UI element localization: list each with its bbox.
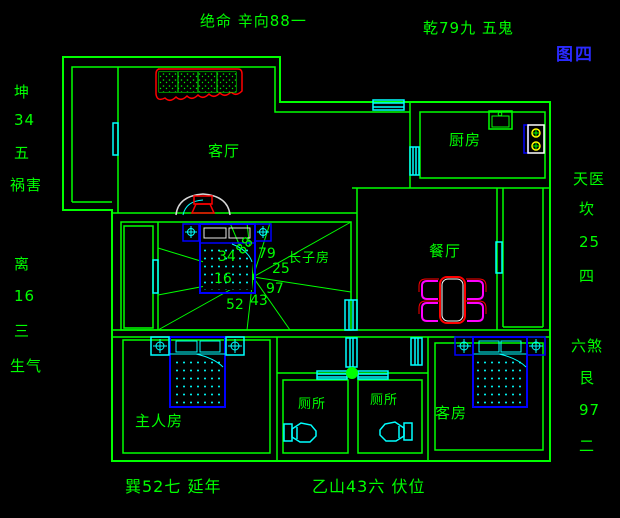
kitchen-left-window — [410, 147, 419, 175]
living-left-window — [113, 123, 118, 155]
lamp-icon — [529, 339, 543, 353]
room-label-guest: 客房 — [435, 405, 467, 422]
annotation-right-si: 四 — [579, 268, 595, 285]
corridor-column — [346, 367, 358, 379]
lamp-icon — [185, 226, 197, 238]
room-label-toilet-2: 厕所 — [370, 394, 398, 408]
cad-canvas: 绝命 辛向88一 乾79九 五鬼 图四 坤 34 五 祸害 离 16 三 生气 … — [0, 0, 620, 518]
corridor-vent-1 — [346, 338, 357, 367]
tv-cabinet — [176, 194, 230, 215]
lamp-icon — [153, 339, 167, 353]
annotation-top-left: 绝命 辛向88一 — [200, 13, 307, 30]
lamp-icon — [257, 226, 269, 238]
annotation-right-kan: 坎 — [579, 201, 595, 218]
compass-number-79: 79 — [258, 246, 276, 262]
compass-number-16: 16 — [214, 271, 232, 287]
gas-stove — [524, 125, 544, 153]
room-label-eldest-son: 长子房 — [288, 252, 330, 266]
compass-number-97: 97 — [266, 281, 284, 297]
annotation-right-liusha: 六煞 — [571, 338, 603, 355]
sofa — [156, 69, 242, 100]
room-label-kitchen: 厨房 — [449, 132, 481, 149]
pillow — [200, 341, 220, 352]
nightstand — [455, 337, 473, 355]
kitchen-sink — [489, 111, 512, 129]
room-label-toilet-1: 厕所 — [298, 398, 326, 412]
pillow — [176, 341, 197, 352]
annotation-left-wu: 五 — [14, 145, 30, 162]
annotation-top-right: 乾79九 五鬼 — [423, 20, 514, 37]
annotation-right-97: 97 — [579, 402, 600, 419]
closet — [124, 226, 153, 328]
annotation-right-tianyi: 天医 — [573, 171, 605, 188]
nightstand — [183, 224, 199, 241]
toilet-icon — [380, 422, 412, 441]
room-label-living: 客厅 — [208, 143, 240, 160]
annotation-bottom-left: 巽52七 延年 — [125, 478, 221, 496]
pillow — [204, 228, 226, 238]
figure-label: 图四 — [556, 40, 594, 65]
annotation-right-er: 二 — [579, 438, 595, 455]
corridor-vent-2 — [411, 338, 422, 365]
annotation-right-25: 25 — [579, 234, 600, 251]
compass-number-34: 34 — [218, 249, 236, 265]
compass-number-52: 52 — [226, 297, 244, 313]
annotation-left-16: 16 — [14, 288, 35, 305]
bedroom-closet-window — [153, 260, 158, 293]
dining-chairs — [419, 279, 486, 321]
master-bed — [170, 337, 225, 407]
toilet1-window — [317, 371, 347, 379]
annotation-left-huohai: 祸害 — [10, 177, 42, 194]
room-label-dining: 餐厅 — [429, 243, 461, 260]
annotation-bottom-center: 乙山43六 伏位 — [312, 478, 425, 496]
guest-bed — [473, 337, 527, 407]
annotation-left-li: 离 — [14, 256, 30, 273]
annotation-left-san: 三 — [14, 323, 30, 340]
compass-number-43: 43 — [250, 293, 268, 309]
lamp-icon — [457, 339, 471, 353]
annotation-left-shengqi: 生气 — [10, 358, 42, 375]
toilet-icon — [284, 423, 316, 442]
annotation-left-34: 34 — [14, 112, 35, 129]
annotation-left-kun: 坤 — [14, 84, 30, 101]
toilet2-window — [358, 371, 388, 379]
compass-number-25: 25 — [272, 261, 290, 277]
room-label-master: 主人房 — [135, 413, 183, 430]
annotation-right-gen: 艮 — [579, 370, 595, 387]
dining-table — [440, 277, 465, 323]
lamp-icon — [228, 339, 242, 353]
